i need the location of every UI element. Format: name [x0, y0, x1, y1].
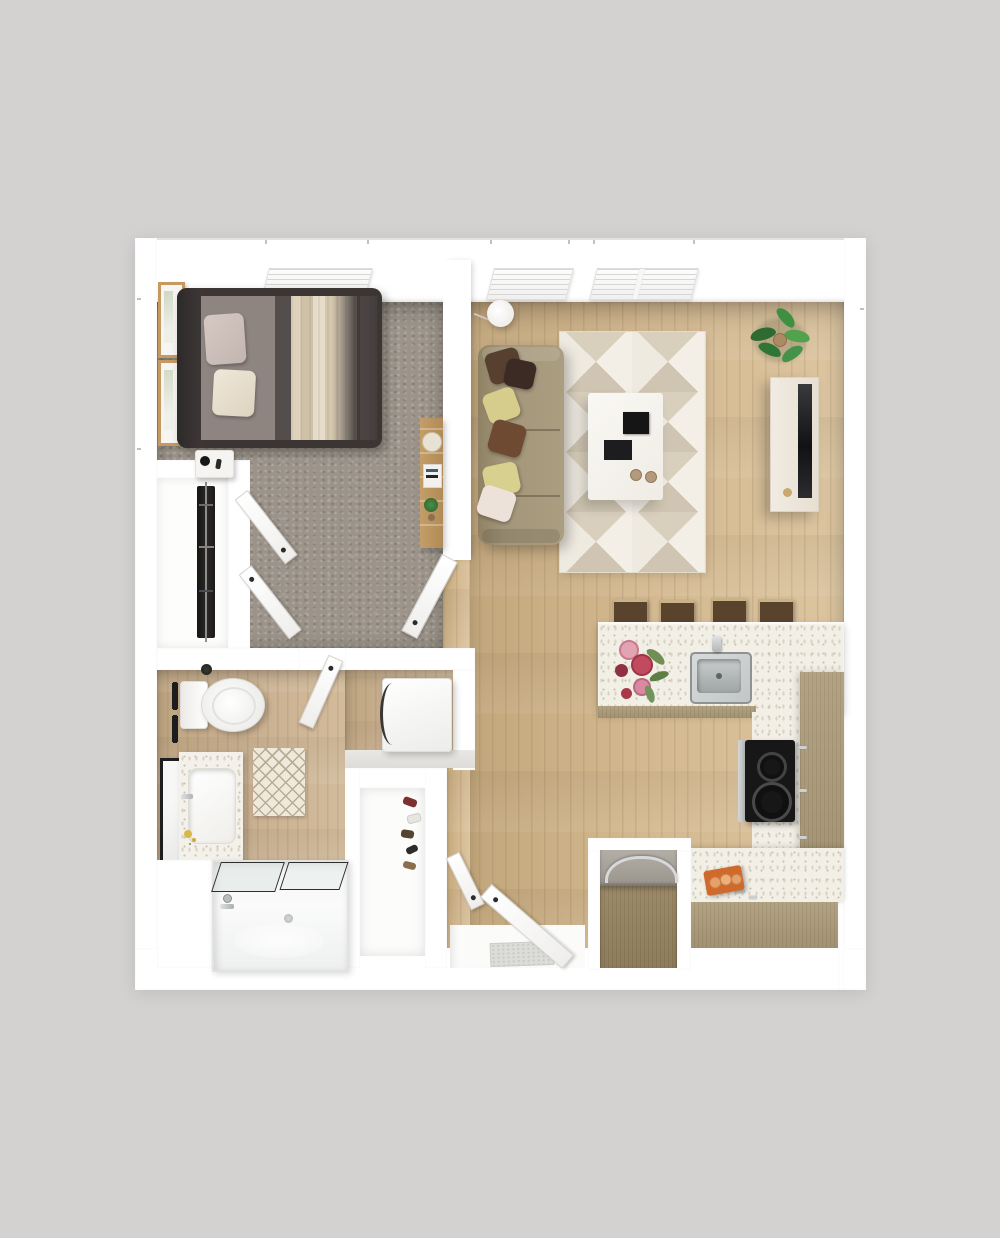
nightstand [195, 450, 234, 478]
wall-tick [693, 240, 695, 244]
potted-plant [748, 308, 810, 370]
table-tray-black [623, 412, 649, 434]
decor-greenery [643, 684, 657, 704]
decor-plate [615, 664, 628, 677]
closet-rod [205, 482, 207, 642]
sink-drain [716, 673, 722, 679]
refrigerator-cabinet-body [600, 886, 677, 968]
clothes-fleck [199, 590, 213, 592]
towel-bar [173, 715, 177, 743]
wall-tick [593, 240, 595, 244]
shoe [401, 829, 415, 839]
vanity-flowers [184, 830, 192, 838]
book-spine [426, 475, 438, 478]
cabinet-handle [749, 896, 757, 899]
frame-art [164, 291, 173, 343]
wall-tick [137, 298, 141, 300]
toilet-seat-ring [212, 687, 256, 725]
shelf-books [423, 464, 442, 488]
cabinet-handle [798, 746, 807, 749]
coffee-table [588, 393, 663, 500]
toilet [180, 678, 264, 730]
laundry-nook-ledge [345, 750, 475, 768]
living-room-window-1 [486, 268, 574, 300]
shelf-plant-pot [428, 514, 435, 521]
scene-background [0, 0, 1000, 1238]
wall-tick [490, 240, 492, 244]
tub-faucet-handle [223, 894, 232, 903]
wall-tick [568, 240, 570, 244]
right-exterior-wall [844, 238, 866, 990]
cabinet-handle [798, 836, 807, 839]
bedroom-living-divider-wall [443, 260, 471, 560]
closet-right-wall [228, 460, 250, 648]
burner-small [757, 752, 787, 782]
door-handle [328, 665, 335, 672]
bath-mat [253, 748, 305, 816]
shoe-closet-right-wall [425, 768, 447, 968]
bread-slice [730, 873, 743, 886]
console-decor-knob [783, 488, 792, 497]
door-handle [412, 619, 419, 626]
tv-console [770, 377, 819, 512]
vanity-sink-basin [188, 768, 236, 844]
bathroom-vanity [179, 752, 243, 864]
washer [382, 678, 452, 752]
bed-duvet [357, 296, 377, 440]
living-room-window-2 [589, 268, 699, 300]
table-cup [645, 471, 657, 483]
fridge-nook-left-wall [588, 842, 600, 970]
cabinet-handle [798, 789, 807, 792]
bed-pillow [212, 369, 256, 417]
towel-bar [173, 682, 177, 710]
bedroom-south-wall-left [157, 648, 300, 670]
floor-plan [135, 238, 866, 990]
door-handle [492, 896, 499, 903]
door-handle [248, 576, 255, 583]
shelf-tray [422, 432, 442, 452]
sofa-armrest [482, 529, 560, 543]
door-handle [470, 894, 477, 901]
bathtub-shower [212, 860, 349, 972]
wall-tick [860, 308, 864, 310]
washer-door-arc [380, 683, 405, 745]
clothes-fleck [199, 504, 213, 506]
tub-faucet [220, 904, 234, 909]
wall-tick [137, 448, 141, 450]
table-book [600, 440, 632, 460]
wall-tick [265, 240, 267, 244]
tv-screen [798, 384, 812, 498]
bed [177, 288, 382, 448]
shower-glass-panel [279, 862, 348, 890]
decor-greenery [648, 669, 670, 683]
window-mullion [632, 269, 644, 299]
headboard [177, 288, 203, 448]
bottom-counter-cabinets [690, 902, 838, 948]
bed-duvet-dark [332, 296, 360, 440]
sink-faucet [712, 636, 721, 652]
kitchen-sink [690, 652, 752, 704]
vanity-faucet [181, 794, 193, 799]
island-decor-plates-flowers [611, 634, 677, 708]
frame-art [164, 370, 173, 430]
ladder-shelf [420, 418, 443, 548]
shower-glass-panel [211, 862, 285, 892]
book-spine [426, 469, 438, 472]
closet-interior [157, 478, 228, 648]
tub-deck-wall [157, 860, 212, 968]
decor-plate [621, 688, 632, 699]
tub-water-sheen [234, 924, 324, 958]
counter-edge-sliver-wall [838, 902, 844, 990]
shelf-plant [424, 498, 438, 512]
floor-lamp-shade [487, 300, 514, 327]
closet-hanging-clothes [197, 486, 215, 638]
wall-tick [367, 240, 369, 244]
plant-pot [773, 333, 787, 347]
bed-pillow [203, 313, 246, 366]
table-cup [630, 469, 642, 481]
bathroom-floor-plant [201, 664, 212, 675]
bedroom-south-wall-right [345, 648, 475, 670]
throw-pillow-espresso [502, 357, 537, 391]
left-exterior-wall [135, 238, 157, 990]
cooktop [745, 740, 795, 822]
door-handle [280, 547, 287, 554]
burner-large [752, 782, 792, 822]
table-lamp [200, 456, 210, 466]
tub-drain [284, 914, 293, 923]
fridge-nook-right-wall [677, 842, 691, 970]
clothes-fleck [199, 546, 214, 548]
decor-bottle [215, 459, 222, 470]
